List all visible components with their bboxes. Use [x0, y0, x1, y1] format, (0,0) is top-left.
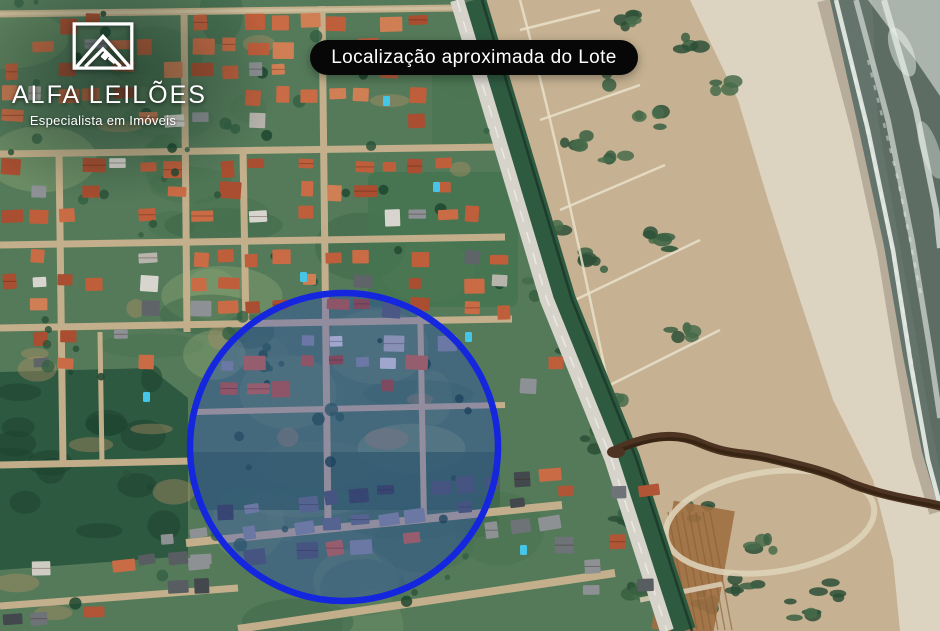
brand-title: ALFA LEILÕES	[12, 81, 194, 110]
brand-subtitle: Especialista em Imóveis	[12, 113, 194, 128]
brand-logo: ALFA LEILÕES Especialista em Imóveis	[12, 22, 194, 128]
screenshot-root: ALFA LEILÕES Especialista em Imóveis Loc…	[0, 0, 940, 631]
gavel-house-icon	[72, 22, 134, 70]
location-badge: Localização aproximada do Lote	[310, 40, 638, 75]
approximate-location-circle	[190, 293, 498, 601]
